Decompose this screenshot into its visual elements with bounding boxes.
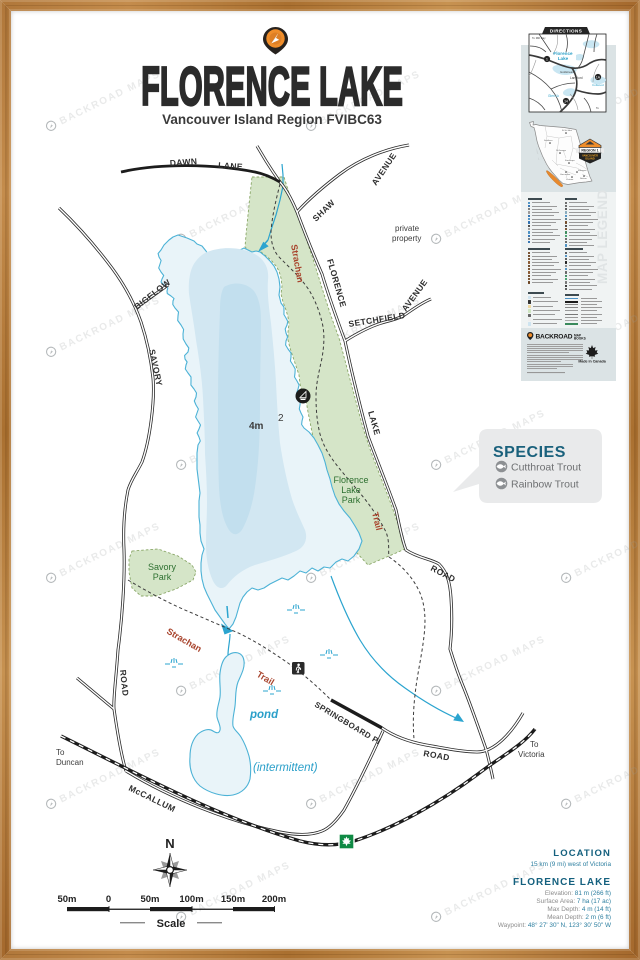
svg-text:0: 0: [106, 894, 111, 905]
svg-text:Pr.George: Pr.George: [556, 149, 567, 152]
svg-text:BIGELOW: BIGELOW: [132, 277, 173, 312]
svg-text:Smithers: Smithers: [544, 139, 554, 142]
svg-text:(intermittent): (intermittent): [253, 762, 318, 774]
svg-text:Glen Lk: Glen Lk: [548, 94, 559, 98]
svg-text:BOOKS: BOOKS: [574, 337, 586, 341]
svg-text:Trail: Trail: [255, 669, 276, 687]
svg-text:Made in Canada: Made in Canada: [578, 359, 606, 363]
svg-text:Park: Park: [153, 572, 172, 582]
svg-text:4m: 4m: [249, 421, 264, 432]
svg-text:To: To: [530, 740, 539, 749]
svg-text:2: 2: [278, 413, 284, 424]
svg-text:Ft.St.John: Ft.St.John: [562, 129, 573, 132]
svg-text:Goldstream: Goldstream: [560, 70, 575, 74]
svg-text:ROAD: ROAD: [118, 669, 131, 697]
svg-text:N: N: [165, 836, 174, 851]
svg-text:Lake: Lake: [341, 485, 361, 495]
svg-text:McCALLUM: McCALLUM: [127, 783, 177, 814]
svg-text:REGION 1: REGION 1: [581, 149, 598, 153]
svg-text:ROAD: ROAD: [429, 563, 457, 584]
svg-text:BACKROAD: BACKROAD: [536, 333, 573, 340]
svg-text:DAWN: DAWN: [169, 156, 197, 168]
svg-text:150m: 150m: [221, 894, 245, 905]
svg-text:Cutthroat Trout: Cutthroat Trout: [511, 462, 581, 474]
svg-text:ROAD: ROAD: [423, 748, 451, 762]
svg-text:200m: 200m: [262, 894, 286, 905]
svg-text:private: private: [395, 224, 420, 233]
svg-text:pond: pond: [249, 709, 279, 721]
svg-text:SPECIES: SPECIES: [493, 444, 566, 461]
svg-text:Kelowna: Kelowna: [578, 170, 587, 172]
svg-text:1: 1: [546, 58, 548, 62]
svg-text:LANE: LANE: [218, 160, 243, 172]
svg-text:Rainbow Trout: Rainbow Trout: [511, 479, 579, 491]
svg-text:SAVORY: SAVORY: [147, 348, 165, 387]
svg-text:DIRECTIONS: DIRECTIONS: [550, 29, 582, 34]
svg-text:Duncan: Duncan: [56, 758, 84, 767]
svg-text:Kamloops: Kamloops: [565, 160, 576, 162]
svg-text:Park: Park: [342, 495, 361, 505]
svg-text:Lake: Lake: [558, 56, 569, 61]
svg-text:Scale: Scale: [157, 918, 186, 930]
svg-text:Florence: Florence: [333, 475, 368, 485]
svg-text:To: To: [56, 748, 65, 757]
svg-text:Vancouver: Vancouver: [560, 173, 571, 176]
svg-text:100m: 100m: [179, 894, 203, 905]
svg-text:property: property: [392, 234, 421, 243]
svg-text:Victoria: Victoria: [518, 750, 545, 759]
svg-text:14: 14: [564, 100, 568, 104]
svg-text:SHAW: SHAW: [310, 197, 337, 223]
svg-text:Langford: Langford: [570, 76, 583, 80]
svg-text:FLORENCE: FLORENCE: [325, 258, 348, 309]
svg-text:Victoria: Victoria: [566, 178, 574, 181]
svg-text:50m: 50m: [57, 894, 76, 905]
svg-text:1A: 1A: [596, 76, 601, 80]
svg-text:50m: 50m: [140, 894, 159, 905]
svg-text:To: To: [596, 106, 599, 110]
svg-text:To Mill Bay: To Mill Bay: [532, 36, 546, 40]
svg-text:Savory: Savory: [148, 562, 177, 572]
svg-text:Nelson: Nelson: [580, 178, 588, 180]
svg-text:Colwood: Colwood: [592, 83, 604, 87]
svg-text:Strachan: Strachan: [165, 626, 203, 654]
svg-text:ISLAND: ISLAND: [585, 157, 595, 160]
